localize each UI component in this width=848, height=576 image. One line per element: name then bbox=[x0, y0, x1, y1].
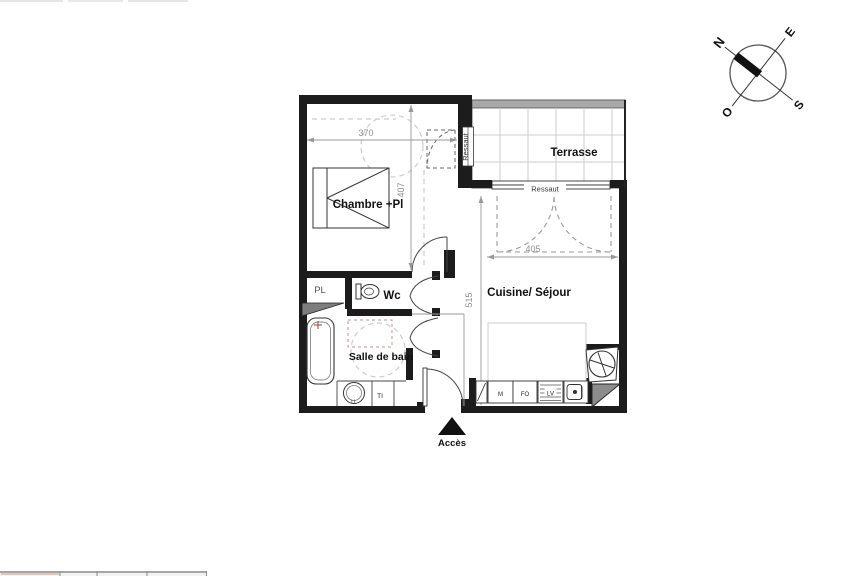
compass-o: O bbox=[719, 104, 736, 120]
accessibility-circle-bath bbox=[351, 323, 405, 377]
dishwasher-letter: LV bbox=[547, 392, 554, 398]
wc-label: Wc bbox=[383, 290, 401, 302]
svg-text:370: 370 bbox=[358, 128, 373, 138]
bottom-table-edge bbox=[0, 571, 207, 576]
microwave-letter: M bbox=[498, 392, 503, 398]
bathroom: Salle de bain LL TI bbox=[307, 318, 413, 406]
french-door-swing bbox=[497, 196, 611, 252]
access-marker: Accès bbox=[438, 417, 466, 449]
kitchen-zone-outline bbox=[488, 323, 586, 381]
svg-text:405: 405 bbox=[525, 244, 540, 254]
svg-text:515: 515 bbox=[464, 292, 474, 307]
terrace-room: Terrasse bbox=[472, 100, 625, 188]
dimension-cuisine-height: 515 bbox=[464, 196, 484, 405]
north-pointer bbox=[733, 53, 762, 78]
terrace-window: Ressaut bbox=[492, 181, 610, 194]
wardrobe-symbol bbox=[313, 168, 389, 228]
compass-n: N bbox=[710, 34, 728, 51]
svg-text:LL: LL bbox=[351, 400, 357, 406]
floorplan-page: Terrasse Ressaut bbox=[0, 0, 848, 576]
oven-letter: FO bbox=[521, 392, 530, 398]
bathroom-label: Salle de bain bbox=[349, 351, 413, 363]
entry-door bbox=[423, 368, 463, 406]
terrace-door-swing bbox=[427, 130, 455, 168]
corner-hatch-triangle bbox=[592, 384, 620, 407]
pl-hatch-triangle bbox=[302, 303, 344, 316]
compass-e: E bbox=[782, 25, 798, 40]
kitchen-counter bbox=[476, 381, 588, 403]
dimension-chambre-height: 407 bbox=[396, 105, 414, 270]
terrace-label: Terrasse bbox=[550, 147, 597, 159]
access-arrow-icon bbox=[438, 417, 466, 435]
compass-s: S bbox=[791, 98, 807, 113]
floorplan-drawing: Terrasse Ressaut bbox=[0, 0, 848, 576]
terrace-top-ledge bbox=[472, 100, 625, 108]
cuisine-label: Cuisine/ Séjour bbox=[487, 287, 571, 299]
svg-text:407: 407 bbox=[396, 182, 406, 197]
pl-label: PL bbox=[314, 285, 326, 296]
chambre-label: Chambre +Pl bbox=[333, 199, 404, 211]
access-label: Accès bbox=[438, 438, 466, 449]
compass-rose: N E S O bbox=[679, 0, 839, 152]
top-hairline bbox=[0, 0, 188, 2]
cooktop-icon bbox=[586, 347, 618, 382]
toilet-icon bbox=[356, 284, 379, 299]
terrace-window-ressaut-label: Ressaut bbox=[531, 185, 559, 194]
towel-rail-symbol: TI bbox=[377, 393, 383, 400]
chambre-room: Chambre +Pl bbox=[312, 115, 455, 272]
washing-machine-icon: LL bbox=[344, 383, 365, 406]
bathtub-icon bbox=[307, 318, 334, 384]
terrace-door-threshold: Ressaut bbox=[461, 127, 474, 166]
corridor-lines bbox=[412, 314, 464, 406]
chambre-door bbox=[412, 237, 447, 272]
terrace-door-ressaut-label: Ressaut bbox=[461, 132, 470, 160]
